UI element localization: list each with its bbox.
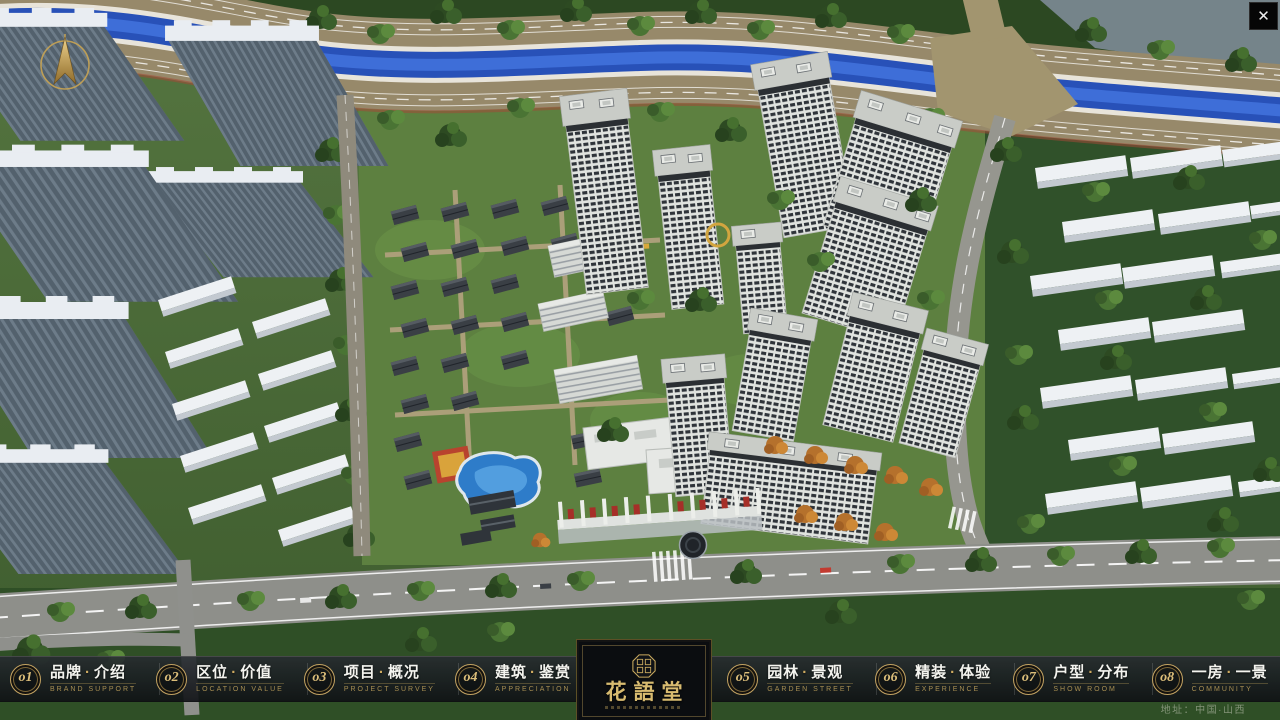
nav-label-en: BRAND SUPPORT	[50, 683, 136, 693]
nav-label-zh: 一房·一景	[1192, 665, 1268, 681]
nav-item-architecture[interactable]: o4 建筑·鉴赏 APPRECIATION	[445, 657, 581, 701]
nav-label: 建筑·鉴赏 APPRECIATION	[495, 665, 571, 693]
nav-label: 品牌·介绍 BRAND SUPPORT	[50, 665, 136, 693]
seal-icon	[632, 654, 656, 678]
nav-item-interior[interactable]: o6 精装·体验 EXPERIENCE	[865, 657, 1001, 701]
nav-label-en: PROJECT SURVEY	[344, 683, 435, 693]
nav-label-en: COMMUNITY	[1192, 683, 1268, 693]
nav-label: 园林·景观 GARDEN STREET	[767, 665, 853, 693]
nav-label: 项目·概况 PROJECT SURVEY	[344, 665, 435, 693]
nav-label-en: EXPERIENCE	[915, 683, 991, 693]
nav-group-right: o5 园林·景观 GARDEN STREET o6 精装·体验 EXPERIEN…	[715, 657, 1280, 701]
project-logo[interactable]: 花語堂	[577, 640, 711, 720]
nav-number-badge: o3	[304, 664, 335, 695]
nav-label-en: LOCATION VALUE	[196, 683, 284, 693]
nav-item-project[interactable]: o3 项目·概况 PROJECT SURVEY	[294, 657, 445, 701]
presentation-stage: ✕ o1 品牌·介绍 BRAND SUPPORT o2 区位·价值 LOCATI…	[0, 0, 1280, 720]
nav-label-zh: 建筑·鉴赏	[495, 665, 571, 681]
nav-number-badge: o8	[1152, 664, 1183, 695]
nav-label-zh: 项目·概况	[344, 665, 420, 681]
logo-title: 花語堂	[599, 681, 690, 703]
nav-item-garden[interactable]: o5 园林·景观 GARDEN STREET	[717, 657, 863, 701]
nav-label-zh: 区位·价值	[196, 665, 272, 681]
close-button[interactable]: ✕	[1249, 2, 1278, 30]
nav-item-brand[interactable]: o1 品牌·介绍 BRAND SUPPORT	[0, 657, 146, 701]
nav-number-badge: o2	[156, 664, 187, 695]
nav-label: 户型·分布 SHOW ROOM	[1053, 665, 1129, 693]
nav-label-en: APPRECIATION	[495, 683, 571, 693]
nav-number-badge: o5	[727, 664, 758, 695]
nav-label: 区位·价值 LOCATION VALUE	[196, 665, 284, 693]
nav-label: 一房·一景 COMMUNITY	[1192, 665, 1268, 693]
nav-item-views[interactable]: o8 一房·一景 COMMUNITY	[1142, 657, 1278, 701]
nav-group-left: o1 品牌·介绍 BRAND SUPPORT o2 区位·价值 LOCATION…	[0, 657, 581, 701]
close-icon: ✕	[1257, 7, 1270, 25]
aerial-masterplan-render[interactable]	[0, 0, 1280, 720]
nav-label-zh: 精装·体验	[915, 665, 991, 681]
nav-number-badge: o7	[1013, 664, 1044, 695]
nav-number-badge: o1	[10, 664, 41, 695]
nav-label-zh: 园林·景观	[767, 665, 843, 681]
logo-subtitle-rule	[605, 706, 683, 709]
nav-number-badge: o4	[455, 664, 486, 695]
nav-label-zh: 品牌·介绍	[50, 665, 126, 681]
nav-label-en: SHOW ROOM	[1053, 683, 1129, 693]
address-label: 地址：中国·山西	[1161, 701, 1246, 716]
nav-label: 精装·体验 EXPERIENCE	[915, 665, 991, 693]
nav-item-location[interactable]: o2 区位·价值 LOCATION VALUE	[146, 657, 294, 701]
nav-number-badge: o6	[875, 664, 906, 695]
nav-label-en: GARDEN STREET	[767, 683, 853, 693]
nav-item-units[interactable]: o7 户型·分布 SHOW ROOM	[1003, 657, 1139, 701]
nav-label-zh: 户型·分布	[1053, 665, 1129, 681]
